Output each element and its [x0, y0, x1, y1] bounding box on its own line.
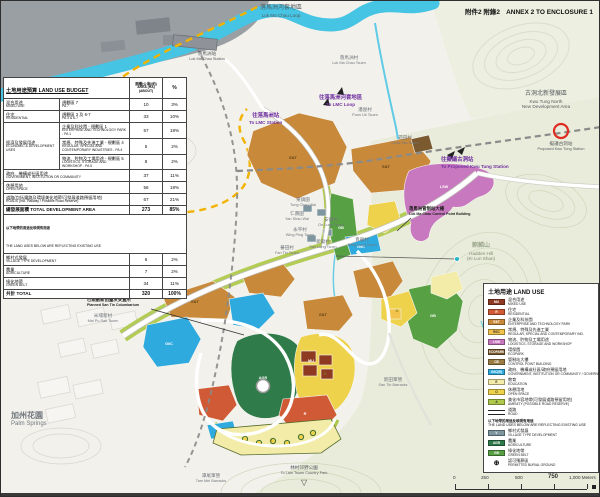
legend-item-green-belt: GB 綠化地帶GREEN BELT: [488, 449, 594, 457]
swatch-mixed-use: MU: [488, 299, 505, 305]
label-san-tin-barracks: 新田軍營San Tin Barracks: [369, 377, 417, 387]
swatch-control-point-building: CB: [488, 359, 505, 365]
label-to-proposed-kwu-tung-station: 往擬議古洞站To Proposed Kwu Tung Station: [441, 157, 509, 169]
legend-item-village: V 鄉村式發展VILLAGE TYPE DEVELOPMENT: [488, 429, 594, 437]
swatch-amenity: A: [488, 399, 505, 405]
scale-bar: 0 250 500 750 1,000 Meters: [447, 475, 599, 495]
table-row-agriculture: 農業AGRICULTURE 72%: [4, 266, 187, 278]
legend-item-mixed-use: MU 混合用途MIXED USE: [488, 298, 594, 306]
scale-tick-0: 0: [453, 475, 456, 480]
svg-text:O: O: [396, 309, 399, 313]
label-tsing-lung-tsuen: 青龍村Tsing Lung Tsuen: [337, 237, 387, 247]
legend-item-residential: R 住宅RESIDENTIAL: [488, 308, 594, 316]
land-use-budget-table: 土地用途預算 LAND USE BUDGET 面積(公頃)(約)AREA (HA…: [3, 77, 187, 299]
table-row-total-development: 總發展面積 TOTAL DEVELOPMENT AREA 27385%: [4, 206, 187, 215]
parcel-r-southwest: [197, 385, 237, 421]
swatch-enterprise-tech: E&T: [488, 319, 505, 325]
svg-text:O: O: [324, 372, 327, 376]
label-mai-po-san-tsuen: 米埔新村Mai Po San Tsuen: [75, 313, 131, 323]
legend-existing-note: 以下地帶的用途反映現有用途 THE LAND USES BELOW ARE RE…: [488, 419, 594, 427]
swatch-road: [488, 410, 505, 415]
svg-text:E&T: E&T: [191, 300, 199, 304]
legend-item-control-point-building: CB 管制站大樓CONTROL POINT BUILDING: [488, 358, 594, 366]
parcel-et-north: [247, 113, 347, 199]
svg-text:E&T: E&T: [319, 313, 327, 317]
swatch-industries: RSC: [488, 329, 505, 335]
swatch-agriculture: AGR: [488, 440, 505, 446]
legend-item-ecopark: ECOPARK 環保園ECOPARK: [488, 348, 594, 356]
label-lam-tsuen-country-park: 林村郊野公園To Lam Tsuen Country Park: [259, 465, 349, 475]
table-row-grand-total: 共計 TOTAL 320100%: [4, 290, 187, 299]
legend-title: 土地用途 LAND USE: [488, 287, 594, 296]
label-poon-uk-tsuen: 潘屋村Poon Uk Tsuen: [339, 107, 391, 117]
scale-tick-500: 500: [515, 475, 523, 480]
legend-item-logistics: LSW 物流、貯物及工場用途LOGISTICS, STORAGE AND WOR…: [488, 338, 594, 346]
table-row-mixed-use: 混合用途MIXED USE 規劃區 7PA 7 103%: [4, 99, 187, 111]
map-frame-bottom: [1, 493, 600, 496]
swatch-village: V: [488, 430, 505, 436]
table-row-green-belt: 綠化地帶GREEN BELT 3411%: [4, 278, 187, 290]
label-palm-springs: 加州花園Palm Springs: [11, 411, 47, 429]
table-row-gic: 政府、機構或社區用途GOVERNMENT, INSTITUTION OR COM…: [4, 170, 187, 182]
svg-text:E&T: E&T: [382, 165, 390, 169]
table-row-open-space: 休憩用地OPEN SPACE 5618%: [4, 182, 187, 194]
svg-text:R: R: [304, 412, 307, 416]
scale-end-marker: [592, 485, 596, 489]
label-fan-tin-tsuen: 蕃田村Fan Tin Tsuen: [265, 245, 309, 255]
label-tung-chan-wai: 東鎮圍Tung Chan Wai: [281, 197, 325, 207]
label-wing-ping-tsuen: 永平村Wing Ping Tsuen: [277, 227, 323, 237]
swatch-ecopark: ECOPARK: [488, 349, 505, 355]
swatch-logistics: LSW: [488, 339, 505, 345]
swatch-education: E: [488, 379, 505, 385]
table-header-row: 土地用途預算 LAND USE BUDGET 面積(公頃)(約)AREA (HA…: [4, 78, 187, 99]
table-row-village: 鄉村式發展VILLAGE TYPE DEVELOPMENT 62%: [4, 254, 187, 266]
label-on-lung-tsuen: 安龍村On Lung Tsuen: [309, 217, 353, 227]
callout-cp-building: 落馬洲管制站大樓Lok Ma Chau Control Point Buildi…: [409, 206, 471, 216]
label-chau-tau-tsuen: 週田村Chau Tau Tsuen: [383, 135, 427, 145]
swatch-residential: R: [488, 309, 505, 315]
svg-text:E&T: E&T: [289, 156, 297, 160]
label-to-lmc-station: 往落馬洲站To LMC Station: [249, 113, 282, 125]
swatch-gic: G/IC(R): [488, 369, 505, 375]
roundabout: [257, 380, 270, 393]
legend-item-enterprise-tech: E&T 企業及科技園ENTERPRISE AND TECHNOLOGY PARK: [488, 318, 594, 326]
planning-map: E&T E&T E&T E&T LSW GB GB AGR O O R G/IC…: [0, 0, 600, 497]
burial-ground-icon: ⊕: [488, 460, 505, 466]
parcel-mu-3: [303, 365, 317, 376]
label-kwu-tung-north: 古洞北新發展區 Kwu Tung North New Development A…: [496, 91, 596, 110]
south-direction-arrow-icon: ▽: [301, 478, 307, 487]
map-legend: 土地用途 LAND USE MU 混合用途MIXED USE R 住宅RESID…: [483, 283, 599, 473]
label-hadden-hill: 麒麟山 Hadden Hill (Ki Lun Shan): [449, 243, 513, 262]
swatch-open-space: O: [488, 389, 505, 395]
legend-item-open-space: O 休憩用地OPEN SPACE: [488, 388, 594, 396]
table-row-existing-note: 以下地帶的用途反映現有用途THE LAND USES BELOW ARE REF…: [4, 215, 187, 254]
legend-item-agriculture: AGR 農業AGRICULTURE: [488, 439, 594, 447]
label-tam-mei-barracks: 潭尾軍營Tam Mei Barracks: [181, 473, 241, 483]
parcel-et-central: [303, 295, 353, 331]
svg-text:G/IC: G/IC: [165, 342, 173, 346]
svg-text:E: E: [270, 439, 273, 443]
parcel-mu-2: [319, 355, 332, 365]
legend-item-burial-ground: ⊕ 認可殯葬區PERMITTED BURIAL GROUND: [488, 459, 594, 467]
scale-unit: 1,000 Meters: [569, 475, 596, 480]
legend-item-industries: RSC 常規、特殊及先進工業REGULAR, SPECIAL AND CONTE…: [488, 328, 594, 336]
scale-tick-250: 250: [481, 475, 489, 480]
label-lmc-station: 落馬洲站Lok Ma Chau Station: [176, 51, 238, 61]
table-row-residential: 住宅RESIDENTIAL 規劃區 3 及 6-7PA 3 & 6-7 3310…: [4, 110, 187, 122]
legend-item-amenity: A 美化市容地帶(可發展道路預留用地)AMENITY (POSSIBLE ROA…: [488, 398, 594, 406]
label-to-lmc-loop: 往落馬洲河套地區To LMC Loop: [319, 95, 362, 107]
legend-item-education: E 教育EDUCATION: [488, 378, 594, 386]
table-row-roads: 道路(包括鐵路及環境美化地帶/可發展道路預留用地)ROADS (incl. Ra…: [4, 194, 187, 206]
label-lok-ma-chau-tsuen: 落馬洲村Lok Ma Chau Tsuen: [321, 55, 377, 65]
svg-text:MU: MU: [308, 359, 314, 363]
label-lmc-loop: 落馬洲河套地區Lok Ma Chau Loop: [226, 5, 336, 18]
svg-text:AGR: AGR: [259, 376, 268, 380]
svg-text:LSW: LSW: [440, 185, 449, 189]
svg-text:GB: GB: [430, 314, 436, 318]
legend-item-gic: G/IC(R) 政府、機構或社區/政府預留用地GOVERNMENT, INSTI…: [488, 368, 594, 376]
swatch-green-belt: GB: [488, 450, 505, 456]
table-row-enterprise-tech: 經濟及發展用途ECONOMIC & DEVELOPMENT USES 企業及科技…: [4, 122, 187, 138]
legend-item-road: 道路ROAD: [488, 408, 594, 416]
annex-title: 附件2 附錄2ANNEX 2 TO ENCLOSURE 1: [465, 6, 593, 16]
label-proposed-kwu-tung-station: 擬議古洞站Proposed Kwu Tung Station: [511, 141, 600, 151]
scale-tick-750: 750: [548, 474, 558, 480]
